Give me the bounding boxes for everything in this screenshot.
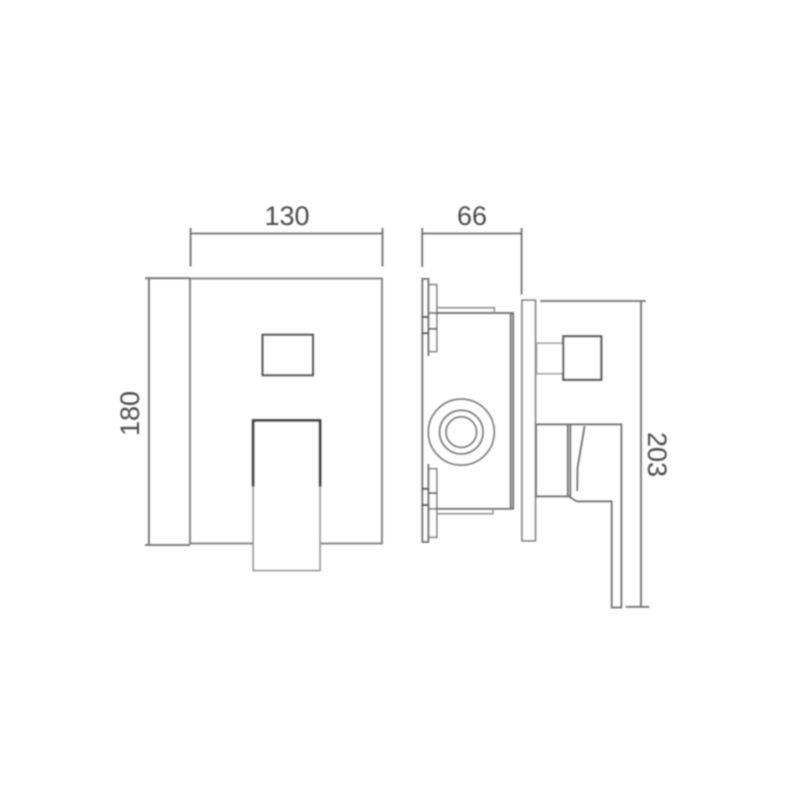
svg-text:130: 130 (264, 201, 309, 231)
svg-text:180: 180 (115, 391, 145, 436)
svg-text:66: 66 (457, 201, 487, 231)
svg-text:203: 203 (642, 432, 672, 477)
